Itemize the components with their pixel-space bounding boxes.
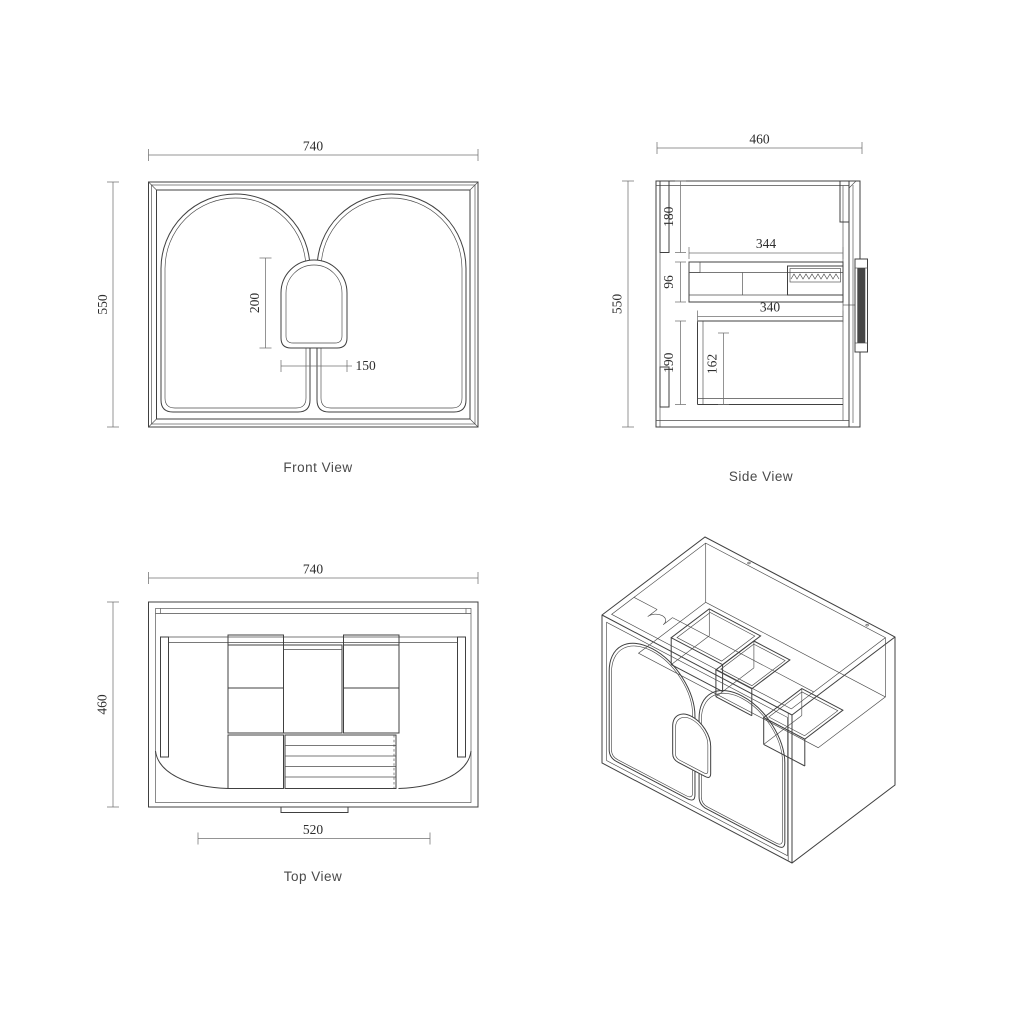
front-dim-height: 550 <box>95 182 119 427</box>
top-side-panels <box>161 637 466 757</box>
side-dim-lower-height-text: 190 <box>661 352 676 373</box>
side-top-bracket <box>840 181 849 222</box>
front-dim-width: 740 <box>149 139 479 162</box>
front-dim-height-text: 550 <box>95 294 110 315</box>
top-cabinet-outline <box>149 602 479 807</box>
iso-screw-hole <box>865 624 869 626</box>
side-dim-top-offset-text: 180 <box>661 206 676 227</box>
top-dim-opening: 520 <box>198 822 430 845</box>
side-drawer-section <box>689 262 843 302</box>
front-dim-handle-width: 150 <box>281 358 376 373</box>
top-dim-opening-text: 520 <box>303 822 324 837</box>
iso-right-door <box>699 673 785 850</box>
top-dim-width-text: 740 <box>303 562 324 577</box>
side-view-label: Side View <box>729 469 793 484</box>
technical-drawing-page: 740 550 200 150 Front View <box>0 0 1024 1024</box>
side-handle-profile <box>843 259 868 352</box>
top-organizer-compartments <box>228 635 399 789</box>
side-dim-inner-height: 162 <box>705 333 730 405</box>
side-dim-drawer-height-text: 96 <box>661 275 676 289</box>
side-cabinet-body <box>656 181 860 427</box>
top-center-tab <box>281 807 348 813</box>
front-dim-handle-width-text: 150 <box>356 358 377 373</box>
iso-top-opening <box>612 541 889 709</box>
front-view-label: Front View <box>283 460 352 475</box>
side-dim-shelf-length-text: 340 <box>760 300 781 315</box>
front-arch-handle <box>281 260 347 348</box>
top-dim-width: 740 <box>149 562 479 585</box>
front-dim-handle-height: 200 <box>247 258 272 348</box>
front-dim-width-text: 740 <box>303 139 324 154</box>
side-dim-inner-height-text: 162 <box>705 354 720 374</box>
top-dim-depth: 460 <box>95 602 120 807</box>
side-dim-drawer-height: 96 <box>661 262 686 302</box>
side-dim-lower-height: 190 <box>661 321 686 405</box>
front-dim-handle-height-text: 200 <box>247 293 262 314</box>
iso-arch-handle <box>673 706 711 779</box>
top-view-drawing: 740 460 520 Top View <box>95 562 479 885</box>
drawing-sheet: 740 550 200 150 Front View <box>0 0 1024 1024</box>
front-view-drawing: 740 550 200 150 Front View <box>95 139 478 476</box>
side-dim-top-offset: 180 <box>661 181 686 253</box>
side-dim-drawer-length-text: 344 <box>756 236 777 251</box>
top-view-label: Top View <box>284 869 343 884</box>
top-dim-depth-text: 460 <box>95 694 110 715</box>
iso-rail-notch <box>648 610 673 625</box>
side-dim-height-text: 550 <box>610 294 625 315</box>
side-dim-height: 550 <box>610 181 635 427</box>
iso-screw-hole <box>747 562 751 564</box>
side-dim-width-text: 460 <box>749 132 770 147</box>
side-dim-width: 460 <box>657 132 862 155</box>
side-dim-shelf-length: 340 <box>698 300 844 323</box>
side-view-drawing: 460 550 180 96 190 <box>610 132 868 485</box>
side-dim-drawer-length: 344 <box>689 236 843 259</box>
top-front-curves <box>156 751 472 813</box>
isometric-view-drawing <box>602 537 895 863</box>
side-drawer-runner-box <box>788 266 844 295</box>
side-drawer-slide-zigzag <box>791 274 839 279</box>
iso-organizer-tray <box>716 641 790 716</box>
